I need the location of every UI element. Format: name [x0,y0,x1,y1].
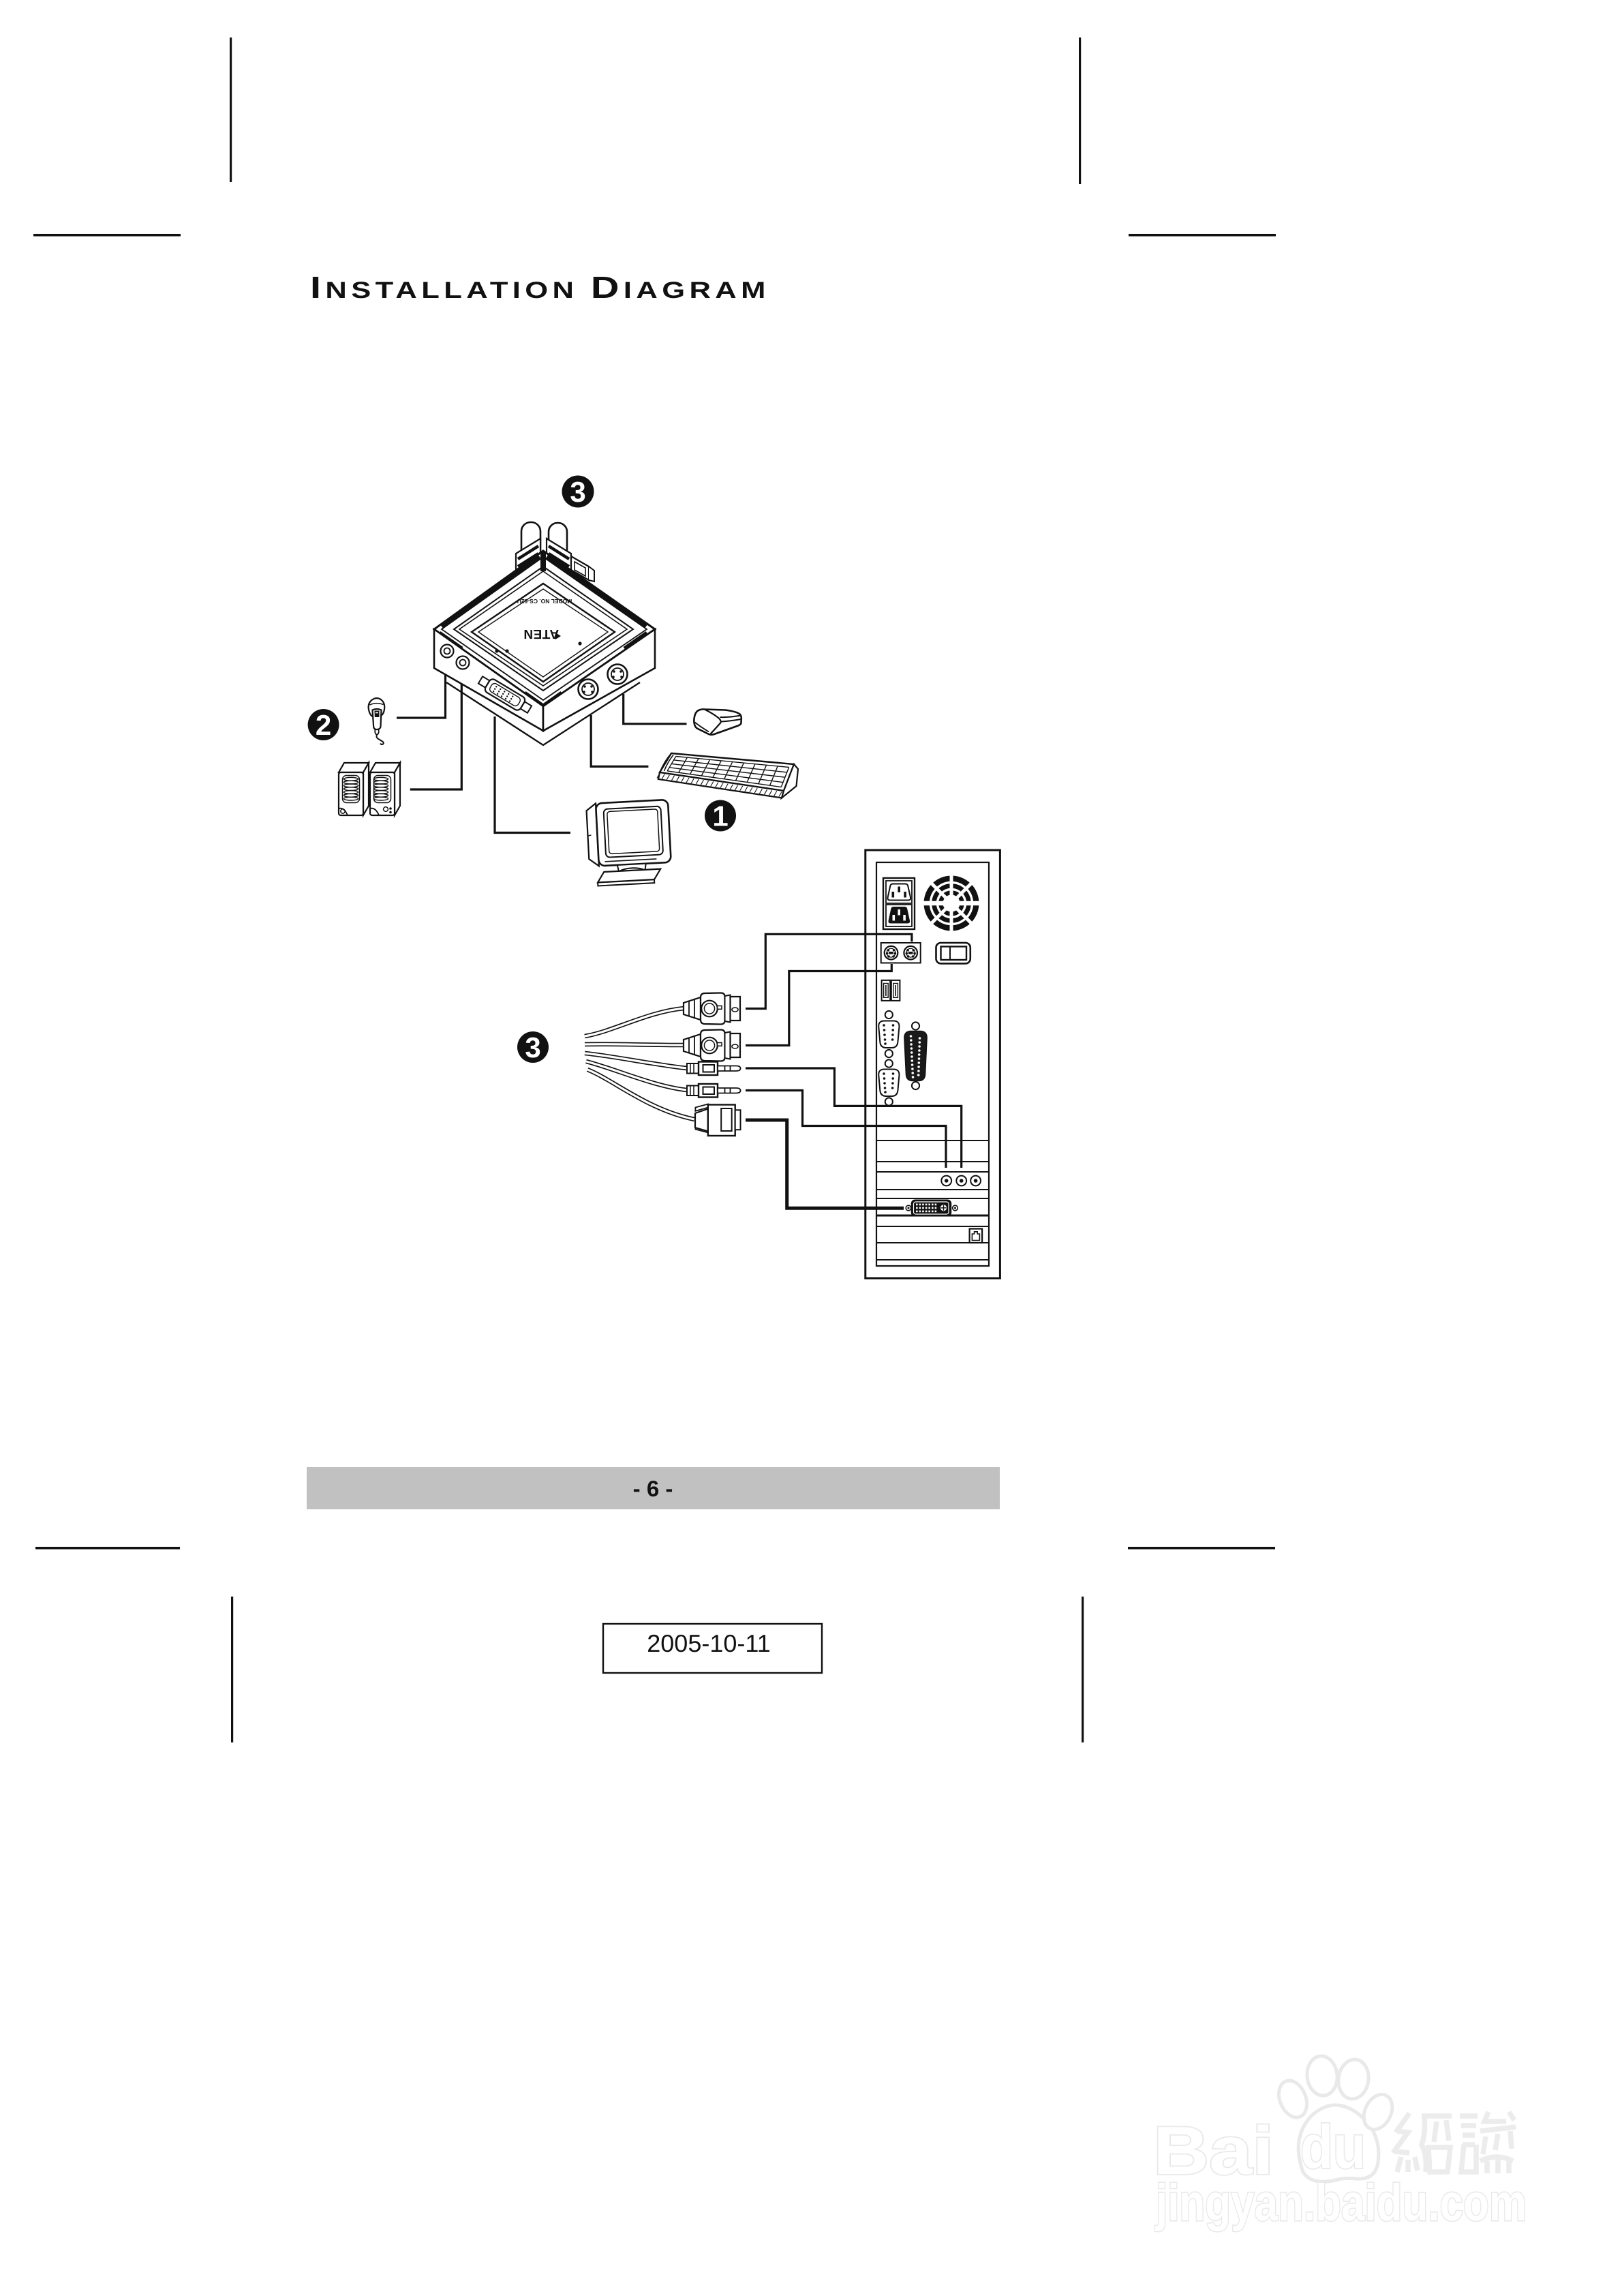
svg-text:jingyan.baidu.com: jingyan.baidu.com [1154,2174,1527,2232]
svg-text:2005-10-11: 2005-10-11 [647,1629,770,1657]
svg-text:3: 3 [570,476,585,508]
svg-text:1: 1 [712,800,728,832]
svg-text:2: 2 [316,709,331,741]
svg-text:3: 3 [525,1031,540,1063]
svg-text:du: du [1300,2113,1366,2181]
svg-text:ATEN: ATEN [523,626,559,641]
svg-text:MODEL NO. CS-62U: MODEL NO. CS-62U [517,598,572,605]
svg-text:- 6 -: - 6 - [633,1476,673,1501]
